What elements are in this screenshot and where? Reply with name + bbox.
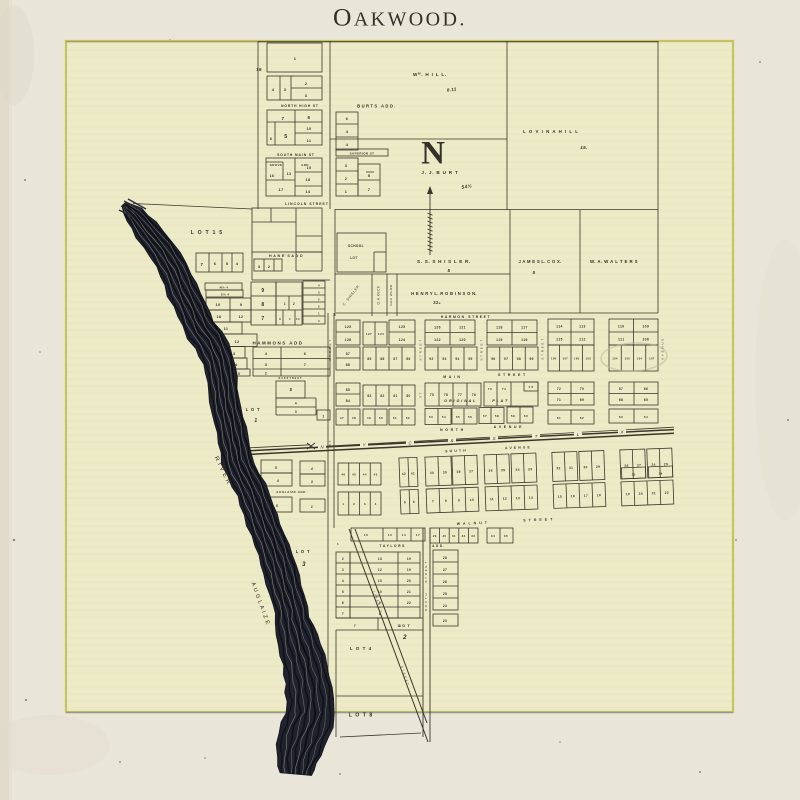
svg-text:49: 49	[367, 416, 371, 420]
svg-text:5: 5	[533, 270, 536, 275]
svg-text:69: 69	[580, 398, 584, 402]
svg-text:30: 30	[583, 465, 588, 469]
svg-text:18: 18	[256, 67, 262, 72]
svg-text:54: 54	[442, 415, 446, 419]
svg-text:2: 2	[305, 81, 308, 86]
svg-text:32: 32	[462, 534, 466, 538]
svg-text:5: 5	[290, 387, 293, 392]
svg-text:126: 126	[434, 325, 441, 329]
svg-text:14: 14	[529, 496, 534, 500]
svg-text:64: 64	[644, 415, 648, 419]
svg-text:AUGLAIZE ADD: AUGLAIZE ADD	[275, 490, 306, 494]
svg-text:56: 56	[468, 415, 472, 419]
svg-text:3: 3	[318, 291, 320, 295]
svg-text:18: 18	[217, 315, 222, 319]
svg-text:6: 6	[308, 115, 311, 120]
svg-text:51: 51	[393, 416, 397, 420]
svg-text:H A N E' S A D D: H A N E' S A D D	[269, 254, 303, 258]
svg-text:31: 31	[569, 466, 574, 470]
svg-text:6: 6	[346, 117, 349, 121]
svg-text:53: 53	[429, 415, 433, 419]
svg-text:59: 59	[511, 414, 515, 418]
svg-text:44: 44	[363, 473, 367, 477]
svg-text:12: 12	[503, 497, 508, 501]
svg-text:19: 19	[626, 492, 631, 496]
svg-text:37: 37	[469, 469, 474, 473]
svg-text:10: 10	[378, 579, 382, 583]
svg-text:15.: 15.	[580, 145, 588, 150]
svg-text:24: 24	[443, 604, 447, 608]
svg-text:S: S	[493, 436, 496, 441]
svg-text:123: 123	[345, 325, 352, 329]
svg-text:41: 41	[411, 471, 416, 475]
svg-text:S T R E E T: S T R E E T	[424, 561, 428, 582]
svg-text:106: 106	[551, 357, 557, 361]
svg-text:104: 104	[637, 357, 643, 361]
svg-text:4: 4	[318, 319, 320, 323]
svg-text:3: 3	[258, 264, 261, 269]
svg-text:SOUTH MAIN ST: SOUTH MAIN ST	[277, 153, 315, 157]
svg-text:9: 9	[261, 288, 264, 294]
svg-text:1: 1	[284, 302, 286, 306]
svg-text:32: 32	[556, 466, 561, 470]
svg-text:SUPERIOR ST: SUPERIOR ST	[350, 152, 375, 156]
svg-text:GEO WURM: GEO WURM	[389, 284, 393, 305]
svg-text:S O U T H: S O U T H	[445, 449, 466, 454]
svg-text:61: 61	[557, 416, 561, 420]
svg-text:L O T 4: L O T 4	[350, 646, 373, 651]
svg-text:3: 3	[345, 164, 348, 168]
svg-text:2: 2	[342, 557, 344, 561]
svg-text:89: 89	[367, 357, 371, 361]
svg-text:86: 86	[346, 363, 351, 367]
svg-text:45: 45	[352, 473, 356, 477]
svg-text:4: 4	[342, 579, 344, 583]
svg-text:97: 97	[504, 357, 508, 361]
svg-text:BURTS ADD.: BURTS ADD.	[357, 104, 397, 109]
svg-text:42: 42	[402, 472, 407, 476]
svg-text:O R I G I N A L: O R I G I N A L	[444, 399, 476, 403]
svg-text:3 8: 3 8	[529, 385, 534, 389]
svg-text:HARMON STREET: HARMON STREET	[441, 315, 491, 319]
svg-text:P L A T: P L A T	[492, 399, 508, 403]
svg-text:18: 18	[305, 178, 310, 182]
svg-text:3: 3	[364, 502, 366, 506]
svg-text:62: 62	[580, 416, 584, 420]
svg-text:124: 124	[378, 332, 384, 336]
svg-text:117: 117	[521, 325, 528, 329]
svg-text:5: 5	[404, 500, 406, 504]
svg-text:2: 2	[353, 502, 355, 506]
svg-text:11: 11	[490, 497, 494, 501]
svg-text:24: 24	[659, 471, 663, 475]
svg-text:122: 122	[434, 338, 441, 342]
svg-text:29: 29	[433, 534, 437, 538]
svg-text:14: 14	[305, 190, 311, 194]
svg-text:107: 107	[649, 357, 655, 361]
svg-text:68: 68	[619, 398, 623, 402]
svg-text:7: 7	[354, 624, 356, 628]
svg-text:1: 1	[337, 542, 339, 546]
svg-text:1: 1	[322, 415, 324, 419]
svg-text:115: 115	[496, 338, 503, 342]
svg-text:65: 65	[644, 398, 648, 402]
svg-text:35: 35	[501, 468, 506, 472]
svg-text:L O V I N A H I L L: L O V I N A H I L L	[523, 129, 579, 134]
svg-text:115: 115	[556, 338, 563, 342]
svg-text:58: 58	[495, 414, 499, 418]
svg-text:118: 118	[496, 325, 503, 329]
svg-text:84: 84	[346, 399, 351, 403]
svg-text:3: 3	[302, 562, 306, 568]
svg-text:6: 6	[413, 500, 415, 504]
svg-text:112: 112	[579, 338, 586, 342]
svg-text:24: 24	[651, 463, 656, 467]
svg-text:31: 31	[452, 534, 456, 538]
svg-text:36: 36	[488, 469, 493, 473]
svg-text:108: 108	[642, 338, 649, 342]
svg-text:63: 63	[619, 415, 623, 419]
svg-text:39: 39	[443, 470, 448, 474]
svg-text:GROVE: GROVE	[270, 163, 283, 167]
svg-text:73: 73	[488, 387, 492, 391]
svg-text:25: 25	[443, 592, 447, 596]
svg-text:74: 74	[502, 387, 506, 391]
svg-text:2: 2	[318, 305, 320, 309]
svg-text:13: 13	[516, 496, 521, 500]
svg-text:LOT: LOT	[350, 256, 358, 260]
svg-text:5: 5	[448, 268, 451, 273]
svg-text:52: 52	[406, 416, 410, 420]
svg-text:10: 10	[306, 127, 311, 131]
svg-text:X: X	[620, 430, 624, 435]
svg-text:100: 100	[574, 357, 580, 361]
svg-text:127: 127	[366, 332, 372, 336]
svg-text:10: 10	[215, 303, 220, 307]
svg-text:113: 113	[579, 325, 586, 329]
svg-text:23: 23	[632, 472, 636, 476]
svg-text:1: 1	[318, 312, 320, 316]
svg-text:3: 3	[342, 568, 344, 572]
svg-text:111: 111	[618, 338, 624, 342]
svg-text:2: 2	[318, 298, 320, 302]
svg-text:LINCOLN STREET: LINCOLN STREET	[285, 202, 329, 206]
svg-text:5: 5	[226, 261, 229, 266]
svg-text:S T R E E T: S T R E E T	[498, 373, 526, 377]
svg-text:2: 2	[402, 634, 407, 641]
svg-text:34: 34	[491, 534, 495, 538]
svg-text:21: 21	[407, 590, 411, 594]
svg-text:18: 18	[597, 493, 602, 497]
svg-text:86: 86	[406, 357, 410, 361]
svg-text:32a: 32a	[433, 300, 441, 305]
svg-text:T: T	[535, 434, 538, 439]
svg-text:75: 75	[430, 393, 434, 397]
svg-text:94: 94	[455, 357, 459, 361]
svg-text:7: 7	[261, 316, 264, 322]
svg-text:81: 81	[393, 394, 397, 398]
svg-text:2: 2	[268, 264, 271, 269]
svg-text:S. S. S H I S L E R.: S. S. S H I S L E R.	[417, 259, 471, 264]
svg-text:9: 9	[240, 303, 243, 307]
svg-text:8: 8	[261, 302, 264, 308]
svg-text:121: 121	[459, 325, 466, 329]
svg-text:&: &	[451, 438, 454, 443]
svg-text:4: 4	[272, 87, 275, 92]
svg-text:2: 2	[293, 302, 295, 306]
svg-text:124: 124	[399, 338, 406, 342]
svg-text:22: 22	[665, 491, 670, 495]
svg-text:116: 116	[521, 338, 528, 342]
svg-text:8: 8	[276, 504, 278, 508]
svg-text:67: 67	[619, 387, 623, 391]
svg-text:38: 38	[456, 470, 461, 474]
svg-text:83: 83	[367, 394, 371, 398]
svg-text:1: 1	[311, 505, 313, 509]
svg-text:S T: S T	[328, 440, 332, 446]
svg-text:33: 33	[528, 467, 533, 471]
svg-text:L O T: L O T	[296, 549, 311, 554]
svg-text:125: 125	[399, 325, 406, 329]
svg-text:4: 4	[318, 284, 320, 288]
svg-text:1: 1	[254, 418, 257, 424]
svg-text:26: 26	[624, 464, 629, 468]
svg-text:50: 50	[379, 416, 383, 420]
svg-text:27: 27	[443, 568, 447, 572]
svg-text:S T R E E T: S T R E E T	[480, 339, 484, 360]
svg-text:92: 92	[429, 357, 433, 361]
svg-text:23: 23	[443, 619, 447, 623]
svg-text:128: 128	[345, 338, 352, 342]
svg-text:A V E N U E: A V E N U E	[494, 425, 523, 429]
svg-text:29: 29	[596, 465, 601, 469]
svg-text:5: 5	[342, 590, 344, 594]
svg-text:G.A.KECK: G.A.KECK	[377, 285, 381, 304]
svg-text:104: 104	[612, 357, 618, 361]
svg-text:2: 2	[265, 372, 267, 376]
svg-text:5: 5	[284, 134, 287, 140]
svg-text:48: 48	[352, 416, 356, 420]
svg-text:120: 120	[459, 338, 466, 342]
svg-text:10: 10	[470, 498, 475, 502]
svg-text:95: 95	[468, 357, 472, 361]
svg-text:16: 16	[571, 494, 576, 498]
svg-text:11: 11	[224, 327, 229, 331]
svg-text:8: 8	[270, 137, 272, 141]
svg-text:T A Y L O R S: T A Y L O R S	[379, 544, 405, 548]
svg-text:93: 93	[442, 357, 446, 361]
svg-text:L O T 8: L O T 8	[349, 713, 374, 719]
svg-text:3: 3	[305, 93, 308, 98]
svg-text:S½ 4: S½ 4	[221, 293, 230, 297]
svg-text:NORTH HIGH ST: NORTH HIGH ST	[281, 104, 319, 108]
svg-text:71: 71	[557, 398, 561, 402]
svg-text:4: 4	[236, 261, 239, 266]
svg-text:66: 66	[644, 387, 648, 391]
svg-text:78: 78	[444, 393, 448, 397]
svg-text:3: 3	[279, 317, 281, 321]
svg-text:3: 3	[311, 480, 313, 484]
svg-text:11: 11	[307, 139, 312, 143]
svg-text:28: 28	[443, 556, 447, 560]
svg-text:7: 7	[432, 499, 434, 503]
svg-text:60: 60	[524, 414, 528, 418]
svg-text:WM. H I L L.: WM. H I L L.	[413, 72, 447, 78]
svg-text:2: 2	[345, 177, 348, 181]
svg-text:96: 96	[491, 357, 495, 361]
svg-text:103: 103	[585, 357, 591, 361]
svg-text:A V E N U E: A V E N U E	[661, 338, 665, 360]
svg-text:19: 19	[407, 557, 411, 561]
svg-text:13: 13	[388, 533, 392, 537]
svg-text:12: 12	[239, 315, 244, 319]
svg-text:13: 13	[378, 557, 382, 561]
svg-text:16: 16	[364, 533, 368, 537]
svg-text:87: 87	[346, 352, 351, 356]
svg-text:16: 16	[270, 174, 275, 178]
svg-text:J A M E S L. C O X.: J A M E S L. C O X.	[518, 259, 561, 264]
svg-text:1: 1	[345, 190, 348, 194]
svg-text:88: 88	[380, 357, 384, 361]
svg-text:6: 6	[214, 261, 217, 266]
svg-text:4: 4	[295, 402, 297, 406]
svg-text:12: 12	[378, 568, 382, 572]
svg-text:19: 19	[407, 568, 411, 572]
svg-text:30: 30	[442, 534, 446, 538]
svg-text:6: 6	[304, 352, 307, 356]
svg-text:80: 80	[406, 394, 410, 398]
svg-text:N: N	[421, 136, 445, 172]
svg-text:3: 3	[265, 363, 268, 367]
svg-text:S O U T H: S O U T H	[424, 593, 428, 611]
svg-text:5: 5	[275, 466, 277, 470]
svg-text:76: 76	[472, 393, 476, 397]
svg-text:17: 17	[416, 533, 420, 537]
svg-text:L O T: L O T	[398, 624, 411, 628]
svg-text:20: 20	[639, 492, 644, 496]
svg-text:A D D.: A D D.	[432, 544, 444, 548]
svg-text:1: 1	[289, 317, 291, 321]
svg-text:4: 4	[375, 502, 377, 506]
svg-text:3: 3	[284, 87, 287, 92]
svg-text:M A I N: M A I N	[443, 375, 461, 379]
svg-text:9: 9	[458, 498, 460, 502]
svg-text:7: 7	[342, 612, 344, 616]
svg-text:109: 109	[642, 325, 649, 329]
svg-text:O A K S T R E E T: O A K S T R E E T	[278, 377, 302, 380]
svg-text:W. A. W A L T E R S: W. A. W A L T E R S	[590, 259, 638, 264]
svg-text:35: 35	[504, 534, 508, 538]
svg-text:85: 85	[346, 388, 351, 392]
svg-text:7: 7	[304, 363, 307, 367]
svg-text:26: 26	[443, 580, 447, 584]
svg-text:4: 4	[276, 479, 279, 483]
svg-text:1: 1	[342, 502, 344, 506]
svg-text:1: 1	[294, 56, 297, 61]
svg-text:7: 7	[282, 116, 285, 121]
svg-text:114: 114	[556, 325, 563, 329]
svg-text:15: 15	[558, 495, 563, 499]
svg-text:47: 47	[340, 416, 344, 420]
svg-text:34: 34	[515, 468, 520, 472]
svg-text:17: 17	[584, 494, 589, 498]
svg-text:HAMMONS ADD: HAMMONS ADD	[252, 341, 303, 346]
svg-text:4: 4	[310, 467, 313, 471]
svg-text:7: 7	[368, 187, 371, 192]
svg-text:43: 43	[374, 473, 378, 477]
svg-text:12: 12	[234, 340, 239, 344]
svg-text:13: 13	[287, 172, 292, 176]
svg-text:14: 14	[402, 533, 406, 537]
svg-text:70: 70	[580, 387, 584, 391]
svg-text:SCHOOL: SCHOOL	[348, 244, 364, 248]
svg-text:107: 107	[562, 357, 568, 361]
svg-text:27: 27	[637, 463, 642, 467]
svg-text:15: 15	[307, 166, 312, 170]
svg-text:55: 55	[456, 415, 460, 419]
svg-text:17: 17	[278, 187, 284, 192]
svg-text:57: 57	[483, 414, 487, 418]
svg-text:20: 20	[407, 579, 411, 583]
svg-text:H E N R Y L. R O B I N S O N: H E N R Y L. R O B I N S O N.	[411, 291, 477, 296]
svg-text:82: 82	[380, 394, 384, 398]
svg-text:S T R E E T: S T R E E T	[419, 339, 423, 360]
svg-text:77: 77	[458, 393, 462, 397]
svg-text:S T: S T	[419, 392, 423, 398]
svg-text:33: 33	[471, 534, 475, 538]
svg-text:72: 72	[557, 387, 561, 391]
svg-text:40: 40	[430, 471, 435, 475]
svg-text:L O T 1 5: L O T 1 5	[191, 230, 224, 236]
svg-text:7: 7	[201, 262, 204, 267]
svg-text:N½ 4: N½ 4	[220, 286, 229, 290]
svg-text:S T R E E T: S T R E E T	[541, 338, 545, 359]
svg-text:46: 46	[341, 473, 345, 477]
svg-text:22: 22	[407, 601, 411, 605]
svg-text:25: 25	[664, 462, 669, 466]
svg-text:10: 10	[296, 317, 300, 321]
svg-text:110: 110	[618, 325, 625, 329]
svg-text:99: 99	[529, 357, 533, 361]
svg-text:87: 87	[393, 357, 397, 361]
svg-text:3: 3	[295, 410, 297, 414]
svg-text:21: 21	[652, 491, 657, 495]
svg-text:6: 6	[342, 601, 344, 605]
svg-text:5: 5	[368, 173, 371, 178]
svg-text:98: 98	[517, 357, 521, 361]
svg-text:N O R T H: N O R T H	[440, 428, 464, 432]
svg-text:L O T: L O T	[246, 407, 261, 412]
svg-text:105: 105	[625, 357, 631, 361]
svg-text:8: 8	[445, 499, 447, 503]
